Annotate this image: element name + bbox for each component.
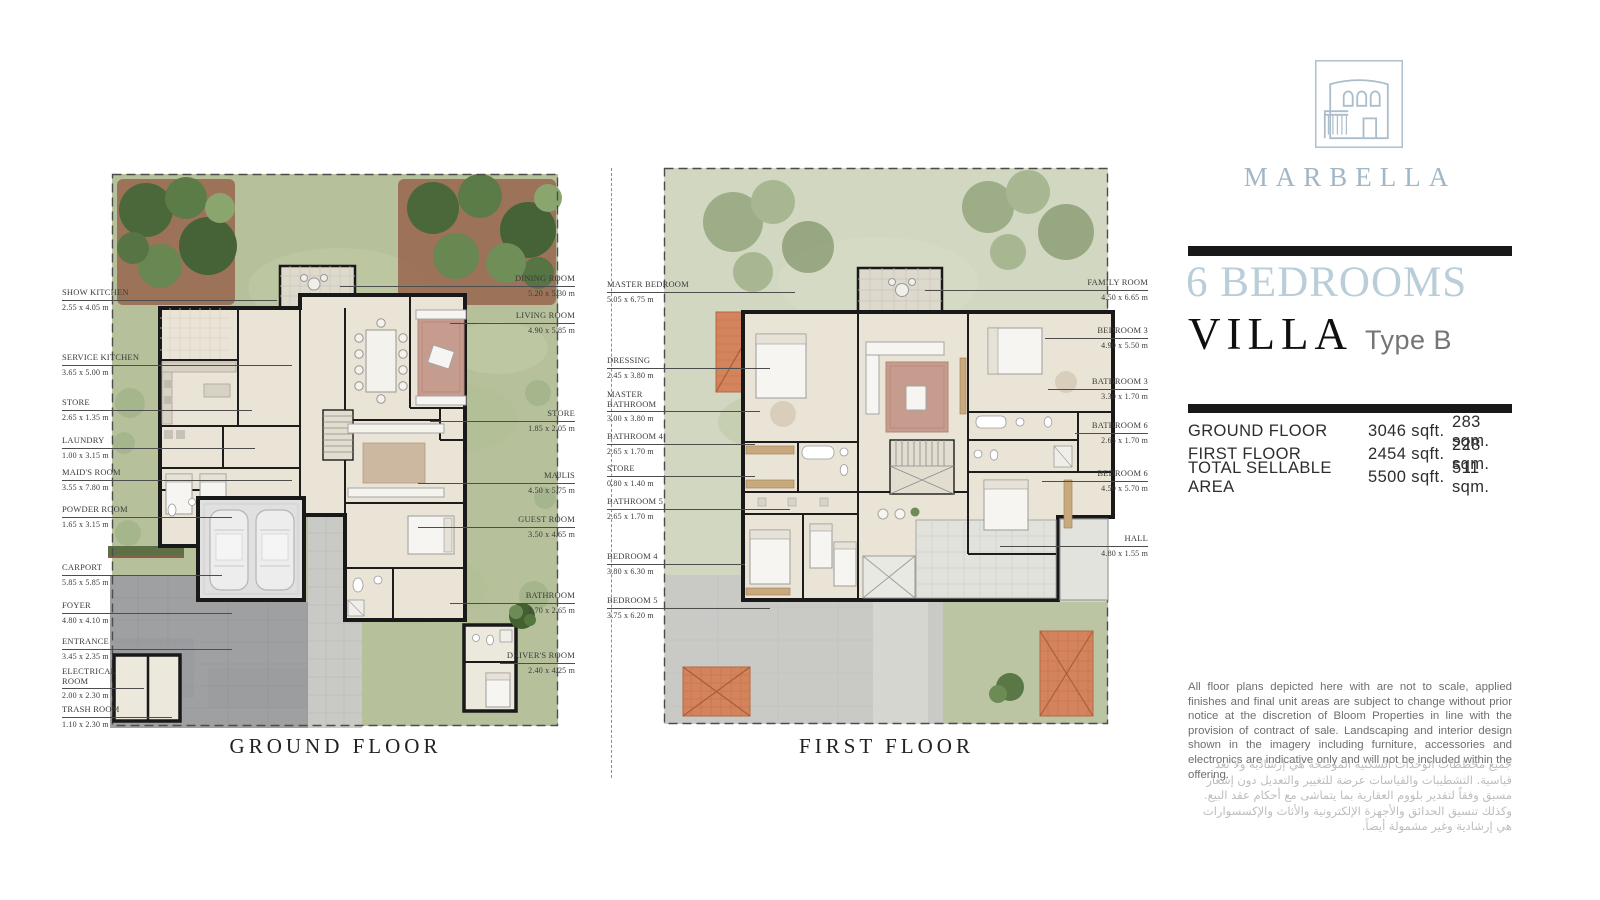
room-dim: 2.65 x 1.70 m — [607, 510, 790, 521]
room-label-foyer: FOYER4.80 x 4.10 m — [62, 601, 232, 625]
room-label-electrical-room: ELECTRICAL ROOM2.00 x 2.30 m — [62, 667, 144, 700]
room-name: GUEST ROOM — [491, 515, 575, 526]
area-row-sqft: 2454 sqft. — [1368, 445, 1452, 464]
room-name: DRIVER'S ROOM — [500, 651, 575, 662]
room-label-drivers-room: DRIVER'S ROOM2.40 x 4.25 m — [500, 651, 575, 675]
room-dim: 4.50 x 5.70 m — [1042, 482, 1148, 493]
room-dim: 1.70 x 2.65 m — [450, 604, 575, 615]
room-dim: 2.00 x 2.30 m — [62, 689, 144, 700]
room-name: BATHROOM 6 — [1075, 421, 1148, 432]
room-dim: 4.90 x 5.85 m — [450, 324, 575, 335]
room-label-carport: CARPORT5.85 x 5.85 m — [62, 563, 222, 587]
table-row: TOTAL SELLABLE AREA 5500 sqft. 511 sqm. — [1188, 466, 1518, 489]
room-name: BEDROOM 5 — [607, 596, 691, 607]
brand-name: MARBELLA — [1188, 162, 1512, 193]
room-dim: 5.20 x 5.30 m — [340, 287, 575, 298]
area-table: GROUND FLOOR 3046 sqft. 283 sqm. FIRST F… — [1188, 420, 1518, 489]
room-name: BEDROOM 6 — [1064, 469, 1148, 480]
room-name: STORE — [607, 464, 691, 475]
top-divider-bar — [1188, 246, 1512, 256]
room-name: MASTER BEDROOM — [607, 280, 691, 291]
room-name: BATHROOM 3 — [1064, 377, 1148, 388]
room-label-bathroom-3: BATHROOM 33.30 x 1.70 m — [1048, 377, 1148, 401]
room-name: ENTRANCE — [62, 637, 146, 648]
room-dim: 5.05 x 6.75 m — [607, 293, 795, 304]
room-name: CARPORT — [62, 563, 146, 574]
room-label-store-gf: STORE2.65 x 1.35 m — [62, 398, 252, 422]
room-label-store-ff: STORE0.80 x 1.40 m — [607, 464, 755, 488]
room-label-bedroom-6: BEDROOM 64.50 x 5.70 m — [1042, 469, 1148, 493]
room-dim: 1.65 x 3.15 m — [62, 518, 232, 529]
room-label-bedroom-4: BEDROOM 43.80 x 6.30 m — [607, 552, 745, 576]
room-dim: 2.45 x 3.80 m — [607, 369, 770, 380]
room-name: MAID'S ROOM — [62, 468, 146, 479]
room-label-powder-room: POWDER ROOM1.65 x 3.15 m — [62, 505, 232, 529]
room-name: BATHROOM 4 — [607, 432, 691, 443]
room-name: BATHROOM — [491, 591, 575, 602]
area-row-sqm: 511 sqm. — [1452, 459, 1518, 497]
room-name: BEDROOM 4 — [607, 552, 691, 563]
room-dim: 4.90 x 5.50 m — [1045, 339, 1148, 350]
room-dim: 3.30 x 1.70 m — [1048, 390, 1148, 401]
marbella-house-icon — [1314, 58, 1404, 150]
room-dim: 3.00 x 3.80 m — [607, 412, 760, 423]
room-dim: 2.65 x 1.70 m — [1075, 434, 1148, 445]
room-name: MASTER BATHROOM — [607, 390, 691, 410]
room-label-maids-room: MAID'S ROOM3.55 x 7.80 m — [62, 468, 292, 492]
room-label-laundry: LAUNDRY1.00 x 3.15 m — [62, 436, 255, 460]
room-dim: 3.80 x 6.30 m — [607, 565, 745, 576]
room-label-master-bathroom: MASTER BATHROOM3.00 x 3.80 m — [607, 390, 760, 423]
room-dim: 1.10 x 2.30 m — [62, 718, 172, 729]
room-dim: 2.65 x 1.70 m — [607, 445, 755, 456]
headline-type: Type B — [1365, 325, 1452, 356]
room-label-living-room: LIVING ROOM4.90 x 5.85 m — [450, 311, 575, 335]
room-dim: 2.65 x 1.35 m — [62, 411, 252, 422]
headline-bedrooms: 6 BEDROOMS — [1186, 258, 1516, 307]
room-dim: 3.65 x 5.00 m — [62, 366, 292, 377]
area-row-sqft: 3046 sqft. — [1368, 422, 1452, 441]
room-label-majlis: MAJLIS4.50 x 5.75 m — [418, 471, 575, 495]
room-dim: 4.50 x 5.75 m — [418, 484, 575, 495]
car-icon — [256, 510, 294, 590]
room-name: STORE — [62, 398, 146, 409]
room-name: FAMILY ROOM — [1064, 278, 1148, 289]
room-label-service-kitchen: SERVICE KITCHEN3.65 x 5.00 m — [62, 353, 292, 377]
room-label-bedroom-3: BEDROOM 34.90 x 5.50 m — [1045, 326, 1148, 350]
room-dim: 0.80 x 1.40 m — [607, 477, 755, 488]
room-name: LAUNDRY — [62, 436, 146, 447]
room-dim: 3.50 x 4.65 m — [418, 528, 575, 539]
room-name: SERVICE KITCHEN — [62, 353, 146, 364]
room-label-master-bedroom: MASTER BEDROOM5.05 x 6.75 m — [607, 280, 795, 304]
room-label-entrance: ENTRANCE3.45 x 2.35 m — [62, 637, 232, 661]
room-label-bathroom-5: BATHROOM 52.65 x 1.70 m — [607, 497, 790, 521]
room-name: BEDROOM 3 — [1064, 326, 1148, 337]
room-name: BATHROOM 5 — [607, 497, 691, 508]
room-name: HALL — [1064, 534, 1148, 545]
floorplan-brochure-page: SHOW KITCHEN2.55 x 4.05 m SERVICE KITCHE… — [0, 0, 1600, 900]
room-label-bathroom-gf: BATHROOM1.70 x 2.65 m — [450, 591, 575, 615]
room-label-bathroom-6: BATHROOM 62.65 x 1.70 m — [1075, 421, 1148, 445]
room-dim: 4.50 x 6.65 m — [925, 291, 1148, 302]
room-dim: 1.00 x 3.15 m — [62, 449, 255, 460]
room-label-dining-room: DINING ROOM5.20 x 5.30 m — [340, 274, 575, 298]
headline-villa-row: VILLA Type B — [1188, 308, 1452, 360]
area-row-label: TOTAL SELLABLE AREA — [1188, 459, 1368, 497]
room-dim: 2.40 x 4.25 m — [500, 664, 575, 675]
room-label-hall: HALL4.80 x 1.55 m — [1000, 534, 1148, 558]
room-name: LIVING ROOM — [491, 311, 575, 322]
area-row-sqft: 5500 sqft. — [1368, 468, 1452, 487]
room-name: DRESSING — [607, 356, 691, 367]
disclaimer-arabic: جميع مخططات الوحدات السكنية الموضحة هي إ… — [1188, 757, 1512, 835]
room-name: ELECTRICAL ROOM — [62, 667, 144, 687]
room-label-trash-room: TRASH ROOM1.10 x 2.30 m — [62, 705, 172, 729]
room-dim: 4.80 x 4.10 m — [62, 614, 232, 625]
room-label-bathroom-4: BATHROOM 42.65 x 1.70 m — [607, 432, 755, 456]
ground-floor-title: GROUND FLOOR — [108, 734, 563, 759]
room-dim: 3.55 x 7.80 m — [62, 481, 292, 492]
room-dim: 4.80 x 1.55 m — [1000, 547, 1148, 558]
room-label-bedroom-5: BEDROOM 53.75 x 6.20 m — [607, 596, 770, 620]
room-dim: 5.85 x 5.85 m — [62, 576, 222, 587]
room-dim: 2.55 x 4.05 m — [62, 301, 277, 312]
room-dim: 3.75 x 6.20 m — [607, 609, 770, 620]
room-dim: 3.45 x 2.35 m — [62, 650, 232, 661]
room-dim: 1.85 x 2.05 m — [430, 422, 575, 433]
first-floor-title: FIRST FLOOR — [658, 734, 1115, 759]
room-name: DINING ROOM — [491, 274, 575, 285]
room-label-guest-room: GUEST ROOM3.50 x 4.65 m — [418, 515, 575, 539]
room-label-store-right: STORE1.85 x 2.05 m — [430, 409, 575, 433]
room-label-family-room: FAMILY ROOM4.50 x 6.65 m — [925, 278, 1148, 302]
room-label-show-kitchen: SHOW KITCHEN2.55 x 4.05 m — [62, 288, 277, 312]
room-name: STORE — [491, 409, 575, 420]
room-name: FOYER — [62, 601, 146, 612]
room-name: POWDER ROOM — [62, 505, 146, 516]
area-row-label: GROUND FLOOR — [1188, 422, 1368, 441]
headline-villa: VILLA — [1188, 308, 1353, 360]
room-name: SHOW KITCHEN — [62, 288, 146, 299]
room-label-dressing: DRESSING2.45 x 3.80 m — [607, 356, 770, 380]
room-name: TRASH ROOM — [62, 705, 146, 716]
room-name: MAJLIS — [491, 471, 575, 482]
